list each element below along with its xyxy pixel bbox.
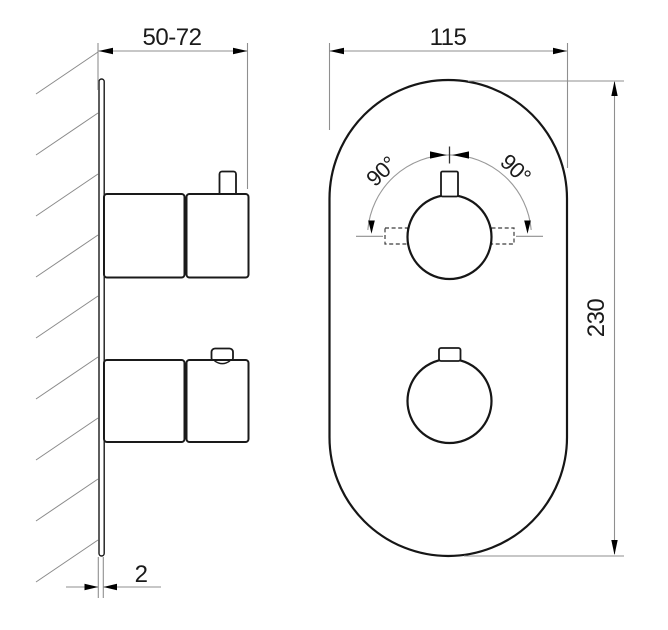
upper-handle-body-rear bbox=[104, 194, 185, 278]
dimension-arrow-top bbox=[611, 81, 617, 96]
thickness-dimension-label: 2 bbox=[135, 561, 148, 588]
dimension-arrow-left bbox=[330, 48, 345, 54]
mounting-plate-side-view bbox=[99, 79, 104, 556]
technical-drawing-canvas: 90° 90° 50-72 115 230 bbox=[0, 0, 668, 630]
dimension-arrow-right bbox=[553, 48, 567, 54]
dimension-arrow-right bbox=[233, 48, 248, 54]
hatch-line bbox=[36, 113, 98, 155]
dimension-arrow-left bbox=[85, 584, 99, 590]
thermostat-knob-lever bbox=[441, 172, 458, 197]
lower-handle-side-view bbox=[104, 349, 249, 443]
hatch-line bbox=[36, 296, 98, 338]
upper-handle-side-view bbox=[104, 172, 249, 278]
volume-knob-tab bbox=[439, 348, 461, 361]
dimension-arrow-right bbox=[103, 584, 117, 590]
hatch-line bbox=[36, 357, 98, 399]
height-dimension-label: 230 bbox=[583, 299, 610, 338]
mixer-installation-drawing: 90° 90° 50-72 115 230 bbox=[0, 0, 668, 630]
thermostat-knob-circle bbox=[408, 195, 492, 279]
width-dimension-label: 115 bbox=[430, 24, 467, 51]
upper-handle-lever-side bbox=[220, 172, 237, 196]
faceplate-front-view bbox=[330, 80, 568, 556]
dimension-thickness: 2 bbox=[66, 557, 161, 598]
hatch-line bbox=[36, 235, 98, 277]
dimension-arrow-left bbox=[99, 48, 114, 54]
wall-hatching bbox=[36, 52, 98, 582]
hatch-line bbox=[36, 540, 98, 582]
lower-handle-body-rear bbox=[104, 360, 185, 442]
hatch-line bbox=[36, 479, 98, 521]
hatch-line bbox=[36, 52, 98, 94]
hatch-line bbox=[36, 174, 98, 216]
hatch-line bbox=[36, 418, 98, 460]
lower-handle-body-front bbox=[187, 360, 249, 442]
dimension-arrow-bottom bbox=[611, 540, 617, 555]
dimension-depth: 50-72 bbox=[98, 24, 248, 189]
depth-dimension-label: 50-72 bbox=[143, 24, 202, 51]
volume-knob-circle bbox=[408, 359, 492, 443]
upper-handle-body-front bbox=[187, 194, 249, 278]
